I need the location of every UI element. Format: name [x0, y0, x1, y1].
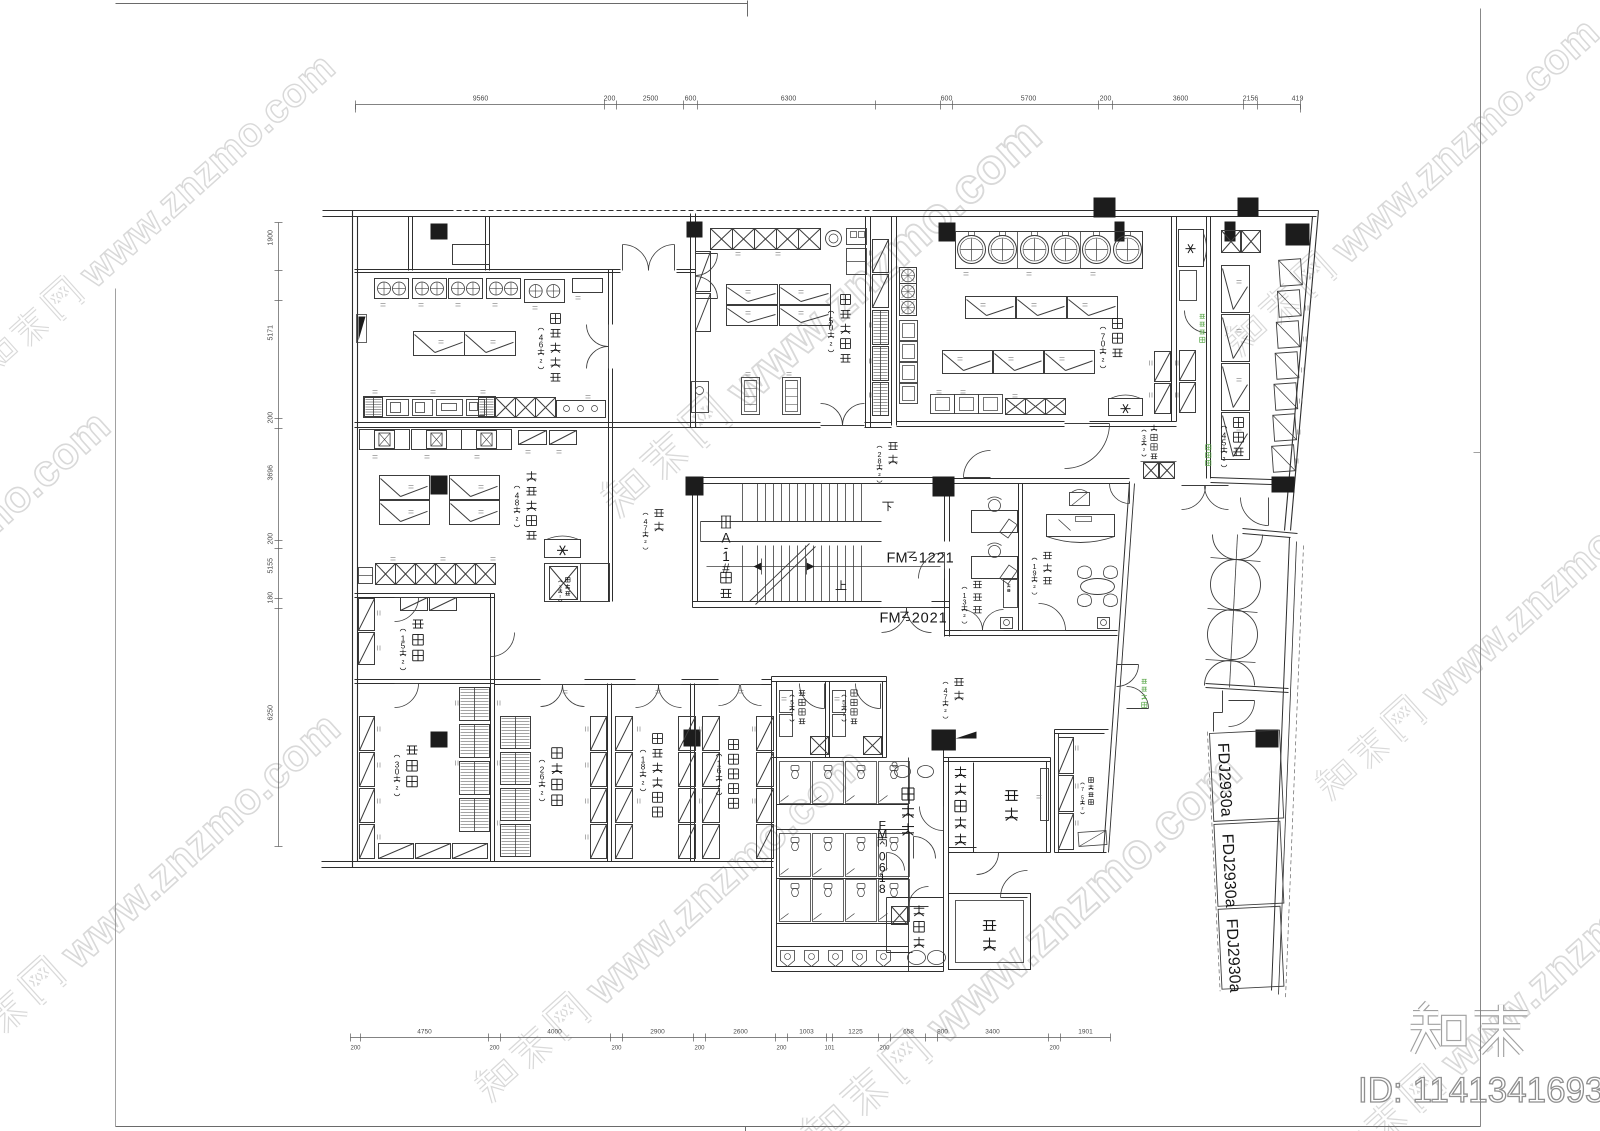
svg-text:658: 658 [903, 1029, 914, 1036]
svg-text:6: 6 [717, 767, 722, 776]
svg-text:419: 419 [1292, 96, 1304, 103]
svg-text:1: 1 [939, 611, 947, 627]
svg-text:FDJ2930a: FDJ2930a [1214, 742, 1235, 817]
svg-text:²: ² [843, 713, 845, 720]
svg-text:²: ² [402, 658, 405, 667]
svg-text:6300: 6300 [781, 96, 797, 103]
svg-text:6250: 6250 [268, 705, 275, 721]
svg-text:1225: 1225 [848, 1029, 863, 1036]
svg-text:800: 800 [937, 1029, 948, 1036]
svg-text:1003: 1003 [799, 1029, 814, 1036]
svg-text:2156: 2156 [1243, 96, 1259, 103]
svg-text:²: ² [1102, 356, 1105, 365]
svg-text:8: 8 [641, 763, 646, 772]
svg-text:ID: 1141341693: ID: 1141341693 [1358, 1071, 1600, 1110]
svg-text:0: 0 [1101, 340, 1106, 349]
svg-text:0: 0 [921, 611, 929, 627]
svg-text:3600: 3600 [1173, 96, 1189, 103]
svg-text:2900: 2900 [650, 1029, 665, 1036]
svg-text:8: 8 [515, 499, 520, 508]
svg-text:200: 200 [611, 1046, 622, 1052]
svg-text:²: ² [541, 789, 544, 798]
svg-text:8: 8 [878, 456, 882, 465]
svg-text:200: 200 [268, 533, 275, 545]
svg-text:600: 600 [685, 96, 697, 103]
svg-text:200: 200 [489, 1046, 500, 1052]
svg-text:200: 200 [1049, 1046, 1060, 1052]
svg-text:FDJ2930a: FDJ2930a [1223, 918, 1244, 993]
svg-text:5171: 5171 [268, 325, 275, 341]
svg-text:M: M [895, 551, 907, 567]
svg-text:5155: 5155 [268, 558, 275, 574]
svg-text:600: 600 [941, 96, 953, 103]
svg-text:0: 0 [829, 324, 834, 333]
svg-text:2: 2 [930, 611, 938, 627]
svg-text:F: F [887, 551, 896, 567]
svg-text:²: ² [1143, 448, 1145, 455]
svg-text:2500: 2500 [643, 96, 659, 103]
svg-text:180: 180 [268, 592, 275, 604]
svg-text:7: 7 [944, 692, 948, 701]
svg-text:3400: 3400 [985, 1029, 1000, 1036]
svg-text:3: 3 [963, 597, 967, 606]
svg-text:²: ² [516, 515, 519, 524]
svg-text:1: 1 [919, 551, 927, 567]
svg-text:5700: 5700 [1021, 96, 1037, 103]
svg-text:5: 5 [1222, 439, 1227, 448]
svg-text:²: ² [791, 713, 793, 720]
svg-text:200: 200 [694, 1046, 705, 1052]
svg-text:²: ² [830, 340, 833, 349]
svg-text:4750: 4750 [417, 1029, 432, 1036]
svg-text:1900: 1900 [268, 230, 275, 246]
svg-text:0: 0 [395, 768, 400, 777]
svg-text:200: 200 [604, 96, 616, 103]
svg-text:²: ² [540, 357, 543, 366]
svg-text:²: ² [396, 784, 399, 793]
svg-text:1901: 1901 [1078, 1029, 1093, 1036]
svg-text:2: 2 [928, 551, 936, 567]
svg-text:2: 2 [937, 551, 945, 567]
svg-text:101: 101 [824, 1046, 835, 1052]
svg-text:FDJ2930a: FDJ2930a [1218, 833, 1239, 908]
svg-text:1: 1 [946, 551, 954, 567]
svg-text:²: ² [718, 783, 721, 792]
svg-text:9560: 9560 [473, 96, 489, 103]
svg-text:7: 7 [644, 523, 648, 532]
svg-text:200: 200 [879, 1046, 890, 1052]
svg-text:²: ² [642, 779, 645, 788]
svg-text:6: 6 [539, 341, 544, 350]
svg-text:²: ² [1223, 455, 1226, 464]
svg-text:200: 200 [268, 412, 275, 424]
svg-text:5: 5 [401, 642, 406, 651]
svg-text:200: 200 [1100, 96, 1112, 103]
svg-text:9: 9 [1033, 568, 1037, 577]
svg-text:²: ² [1082, 807, 1084, 813]
svg-text:6: 6 [540, 773, 545, 782]
svg-text:8: 8 [879, 882, 886, 896]
svg-text:2: 2 [912, 611, 920, 627]
svg-text:F: F [880, 611, 889, 627]
svg-text:4000: 4000 [547, 1029, 562, 1036]
svg-text:200: 200 [776, 1046, 787, 1052]
svg-text:2600: 2600 [733, 1029, 748, 1036]
svg-text:M: M [888, 611, 900, 627]
svg-text:3696: 3696 [268, 465, 275, 481]
svg-text:200: 200 [350, 1046, 361, 1052]
